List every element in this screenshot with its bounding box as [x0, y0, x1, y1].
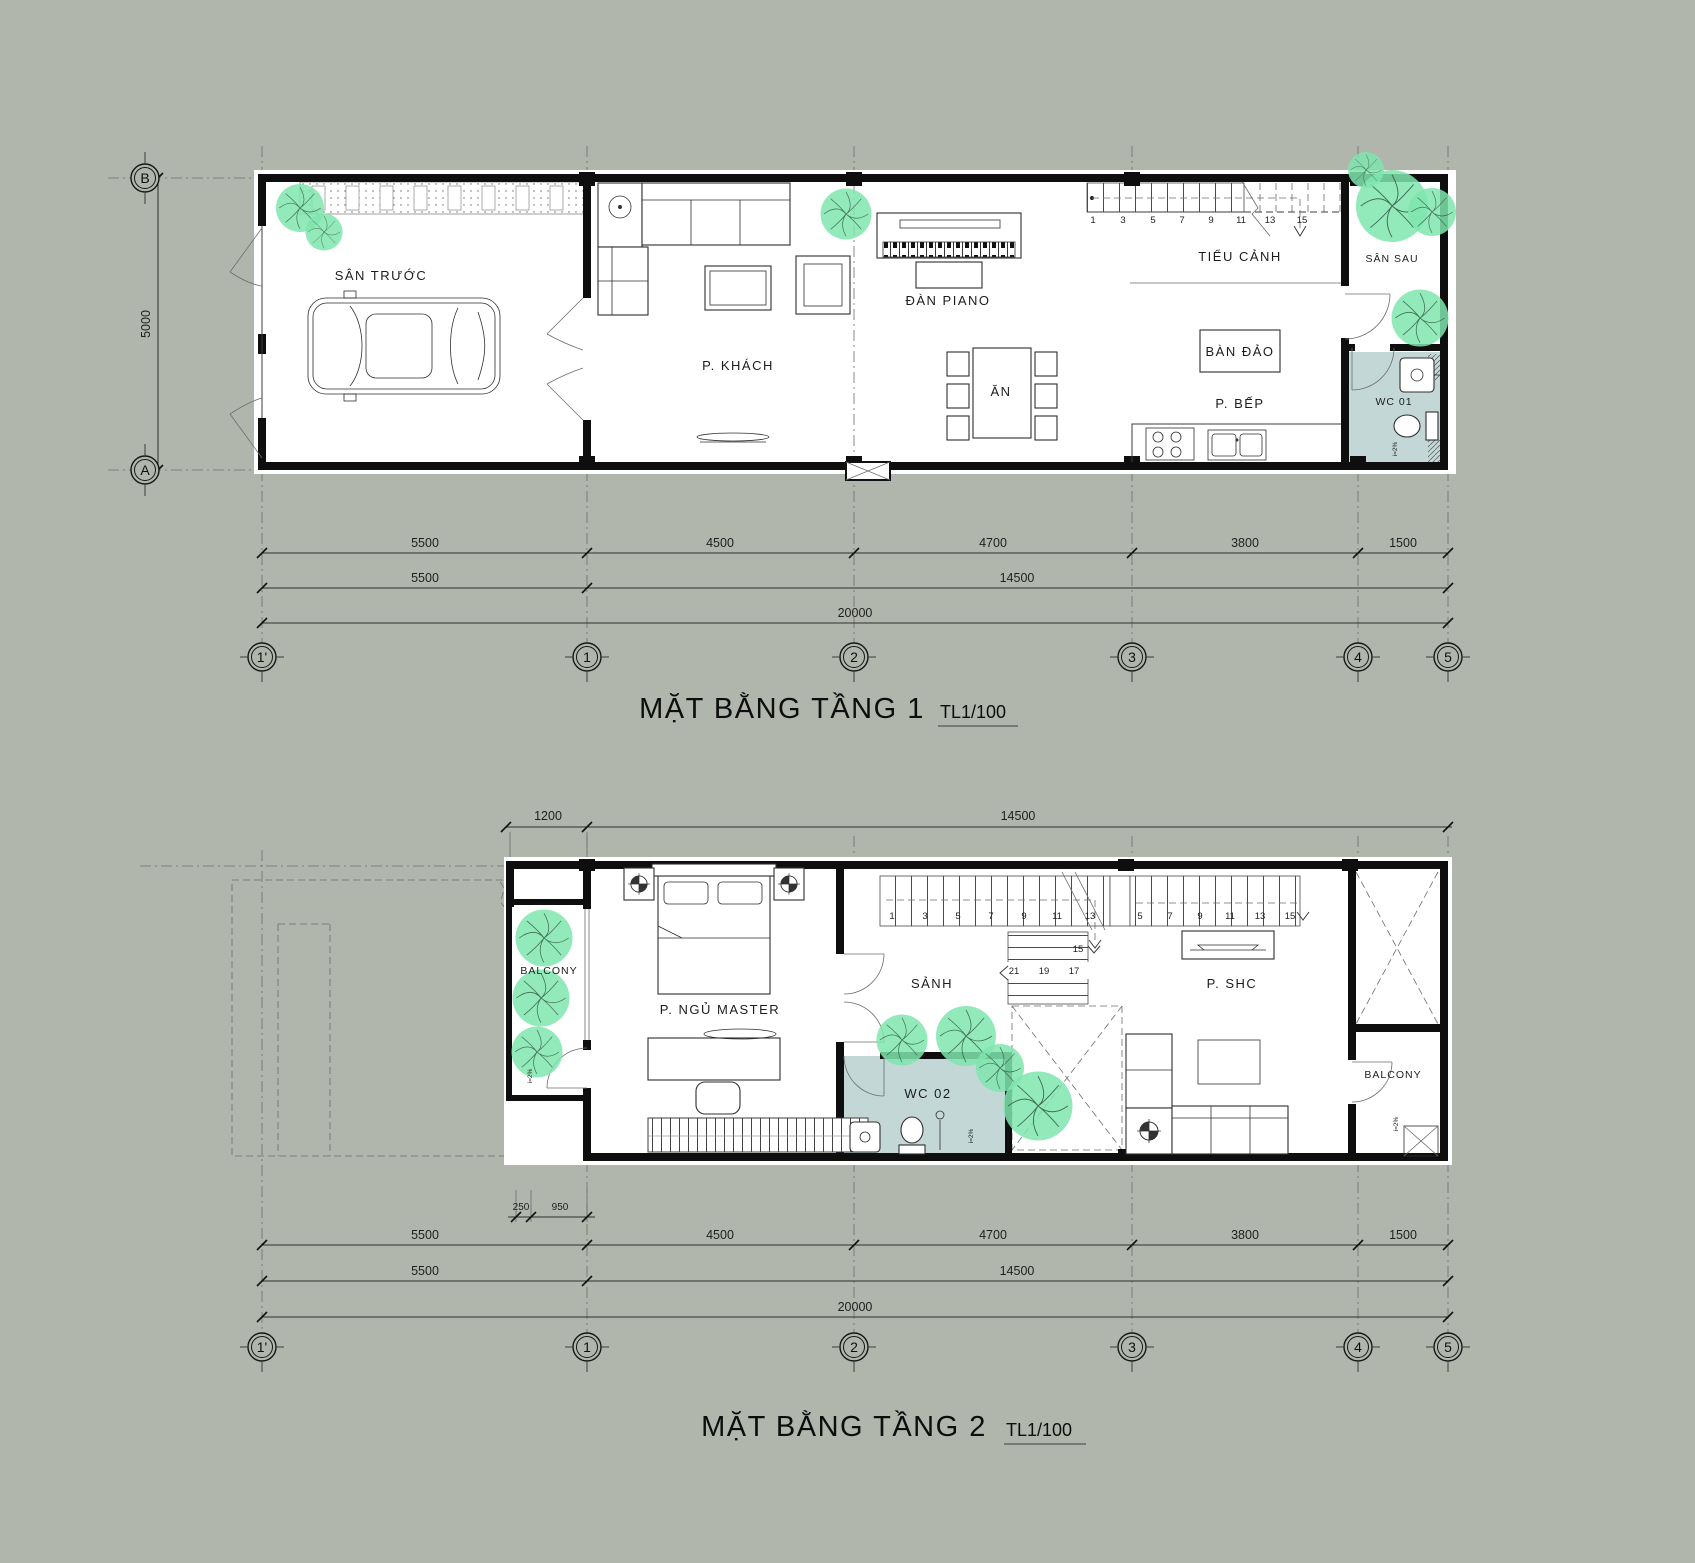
floor2-title: MẶT BẰNG TẦNG 2 — [701, 1409, 987, 1443]
svg-text:4700: 4700 — [979, 536, 1007, 550]
tree-icon — [1348, 152, 1384, 188]
svg-text:3800: 3800 — [1231, 1228, 1259, 1242]
svg-text:20000: 20000 — [838, 1300, 873, 1314]
tree-icon — [1004, 1072, 1073, 1141]
svg-text:15: 15 — [1285, 911, 1296, 922]
slope-label: i=2% — [1393, 1116, 1400, 1131]
tree-icon — [877, 1015, 928, 1066]
grid-row-label: B — [140, 170, 149, 186]
room-label-family: P. SHC — [1207, 976, 1258, 991]
floor2-plan: 1200 14500 1 3 5 7 9 11 13 5 7 9 — [140, 809, 1470, 1444]
svg-text:14500: 14500 — [1001, 809, 1036, 823]
floor2-grid-bubbles: 1' 1 2 3 4 5 — [240, 1333, 1470, 1372]
plan-drawing: 1 3 5 7 9 11 13 15 — [0, 0, 1695, 1563]
svg-text:1: 1 — [889, 911, 894, 922]
svg-text:2: 2 — [850, 1339, 858, 1355]
svg-text:9: 9 — [1021, 911, 1026, 922]
stair-number: 15 — [1297, 215, 1308, 226]
svg-text:250: 250 — [513, 1202, 530, 1213]
stair-number: 7 — [1179, 215, 1184, 226]
tree-icon — [512, 1027, 563, 1078]
floor2-top-dims: 1200 14500 — [501, 809, 1453, 858]
floor2-dimensions: 250 950 5500 4500 4700 3800 1500 5500 14… — [257, 1190, 1453, 1322]
wardrobe-icon — [648, 1118, 868, 1152]
svg-text:4: 4 — [1354, 649, 1362, 665]
floor1-title: MẶT BẰNG TẦNG 1 — [639, 691, 925, 725]
room-label-front-yard: SÂN TRƯỚC — [335, 268, 428, 283]
svg-text:1: 1 — [583, 649, 591, 665]
room-label-wc01: WC 01 — [1375, 396, 1412, 408]
tree-icon — [513, 970, 570, 1027]
stair-number: 3 — [1120, 215, 1125, 226]
tree-icon — [1392, 290, 1449, 347]
svg-text:1': 1' — [257, 649, 267, 665]
svg-text:5: 5 — [1444, 1339, 1452, 1355]
svg-text:5500: 5500 — [411, 1264, 439, 1278]
svg-text:9: 9 — [1197, 911, 1202, 922]
svg-text:950: 950 — [552, 1202, 569, 1213]
slope-label: i=2% — [1392, 441, 1399, 456]
floor1-dimensions: 5500 4500 4700 3800 1500 5500 14500 2000… — [257, 536, 1453, 628]
roof-below-outline — [140, 850, 512, 1334]
stair-landing-number: 15 — [1073, 944, 1084, 955]
svg-text:13: 13 — [1085, 911, 1096, 922]
svg-text:20000: 20000 — [838, 606, 873, 620]
tree-icon — [821, 189, 872, 240]
room-label-balcony-right: BALCONY — [1364, 1069, 1421, 1081]
svg-text:5000: 5000 — [139, 310, 153, 338]
svg-text:1': 1' — [257, 1339, 267, 1355]
grid-row-label: A — [140, 462, 150, 478]
room-label-master: P. NGỦ MASTER — [660, 1002, 780, 1017]
svg-text:19: 19 — [1039, 966, 1050, 977]
svg-text:3: 3 — [1128, 649, 1136, 665]
room-label-dining: ĂN — [990, 384, 1011, 399]
svg-text:17: 17 — [1069, 966, 1080, 977]
svg-text:14500: 14500 — [1000, 1264, 1035, 1278]
room-label-island: BÀN ĐẢO — [1205, 344, 1274, 359]
svg-text:14500: 14500 — [1000, 571, 1035, 585]
svg-text:5500: 5500 — [411, 571, 439, 585]
floor1-vertical-dim: 5000 — [139, 173, 163, 475]
tree-icon — [1408, 188, 1456, 236]
svg-text:4700: 4700 — [979, 1228, 1007, 1242]
room-label-back-yard: SÂN SAU — [1365, 252, 1418, 265]
floor-plan-sheet: 1 3 5 7 9 11 13 15 — [0, 0, 1695, 1563]
room-label-living: P. KHÁCH — [702, 358, 774, 373]
svg-text:5500: 5500 — [411, 1228, 439, 1242]
svg-text:3800: 3800 — [1231, 536, 1259, 550]
tree-icon — [516, 910, 573, 967]
svg-text:1: 1 — [583, 1339, 591, 1355]
stair-number: 5 — [1150, 215, 1155, 226]
room-label-garden: TIỂU CẢNH — [1198, 249, 1282, 264]
room-label-piano: ĐÀN PIANO — [905, 293, 990, 308]
floor1-plan: 1 3 5 7 9 11 13 15 — [108, 146, 1470, 726]
svg-text:5: 5 — [955, 911, 960, 922]
stair-number: 11 — [1236, 215, 1246, 226]
svg-text:1500: 1500 — [1389, 1228, 1417, 1242]
floor1-grid-bubbles: 1' 1 2 3 4 5 — [240, 643, 1470, 682]
svg-text:7: 7 — [988, 911, 993, 922]
slope-label: i=2% — [968, 1128, 975, 1143]
svg-text:7: 7 — [1167, 911, 1172, 922]
stair-number: 13 — [1265, 215, 1276, 226]
svg-text:4500: 4500 — [706, 536, 734, 550]
stair-number: 1 — [1090, 215, 1095, 226]
tree-icon — [305, 213, 342, 250]
stair-number: 9 — [1208, 215, 1213, 226]
svg-text:2: 2 — [850, 649, 858, 665]
svg-text:11: 11 — [1225, 911, 1235, 922]
room-label-balcony-left: BALCONY — [520, 965, 577, 977]
svg-text:4500: 4500 — [706, 1228, 734, 1242]
svg-text:1200: 1200 — [534, 809, 562, 823]
svg-text:11: 11 — [1052, 911, 1062, 922]
slope-label: i=2% — [527, 1068, 534, 1083]
floor1-scale: TL1/100 — [940, 702, 1006, 722]
svg-text:3: 3 — [1128, 1339, 1136, 1355]
svg-text:3: 3 — [922, 911, 927, 922]
room-label-wc02: WC 02 — [904, 1086, 951, 1101]
floor2-scale: TL1/100 — [1006, 1420, 1072, 1440]
svg-text:5500: 5500 — [411, 536, 439, 550]
svg-text:5: 5 — [1137, 911, 1142, 922]
svg-text:4: 4 — [1354, 1339, 1362, 1355]
room-label-kitchen: P. BẾP — [1215, 396, 1264, 411]
svg-text:1500: 1500 — [1389, 536, 1417, 550]
svg-text:5: 5 — [1444, 649, 1452, 665]
room-label-hall: SẢNH — [911, 976, 953, 991]
svg-text:13: 13 — [1255, 911, 1266, 922]
svg-text:21: 21 — [1009, 966, 1020, 977]
